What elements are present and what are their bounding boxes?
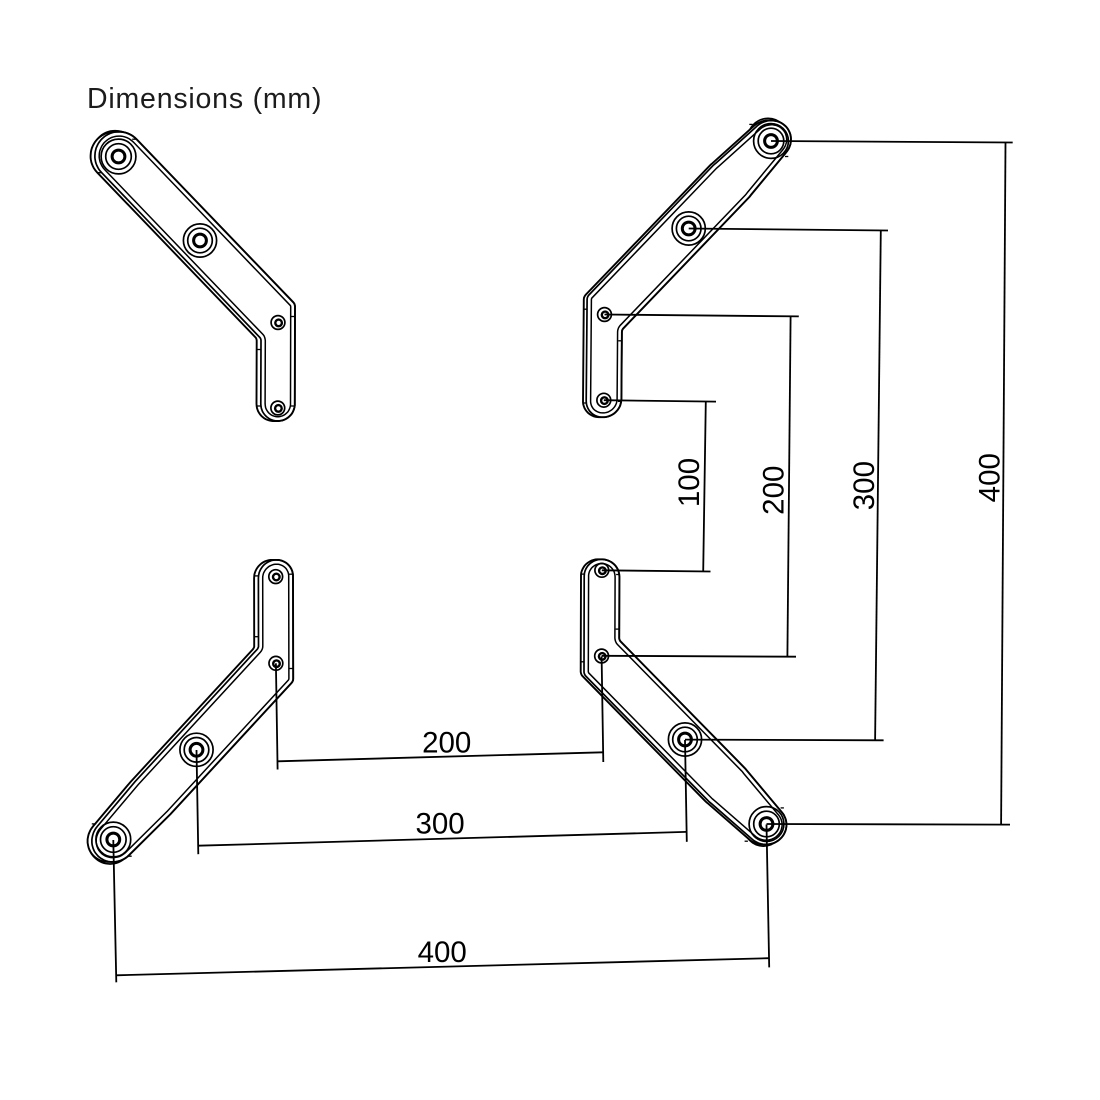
svg-text:300: 300 (415, 807, 464, 840)
svg-text:100: 100 (673, 458, 706, 507)
svg-text:200: 200 (422, 727, 471, 760)
svg-text:300: 300 (848, 461, 881, 510)
svg-text:200: 200 (758, 466, 791, 515)
svg-text:400: 400 (418, 936, 467, 969)
svg-text:Dimensions (mm): Dimensions (mm) (87, 83, 322, 115)
svg-text:400: 400 (974, 453, 1007, 502)
